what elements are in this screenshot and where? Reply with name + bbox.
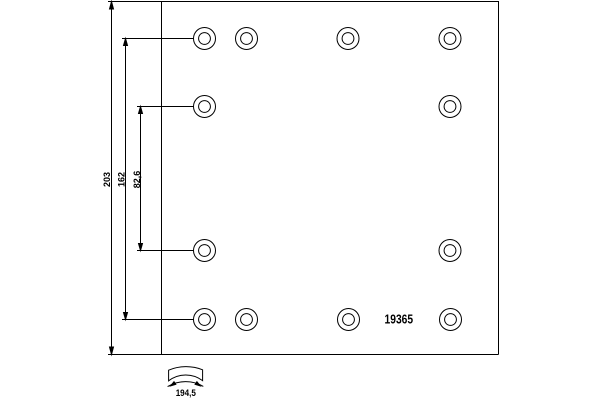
svg-text:203: 203 bbox=[102, 172, 112, 187]
svg-text:82,6: 82,6 bbox=[132, 171, 142, 189]
svg-text:19365: 19365 bbox=[385, 313, 414, 327]
svg-text:194,5: 194,5 bbox=[176, 388, 196, 399]
svg-text:162: 162 bbox=[117, 172, 127, 187]
